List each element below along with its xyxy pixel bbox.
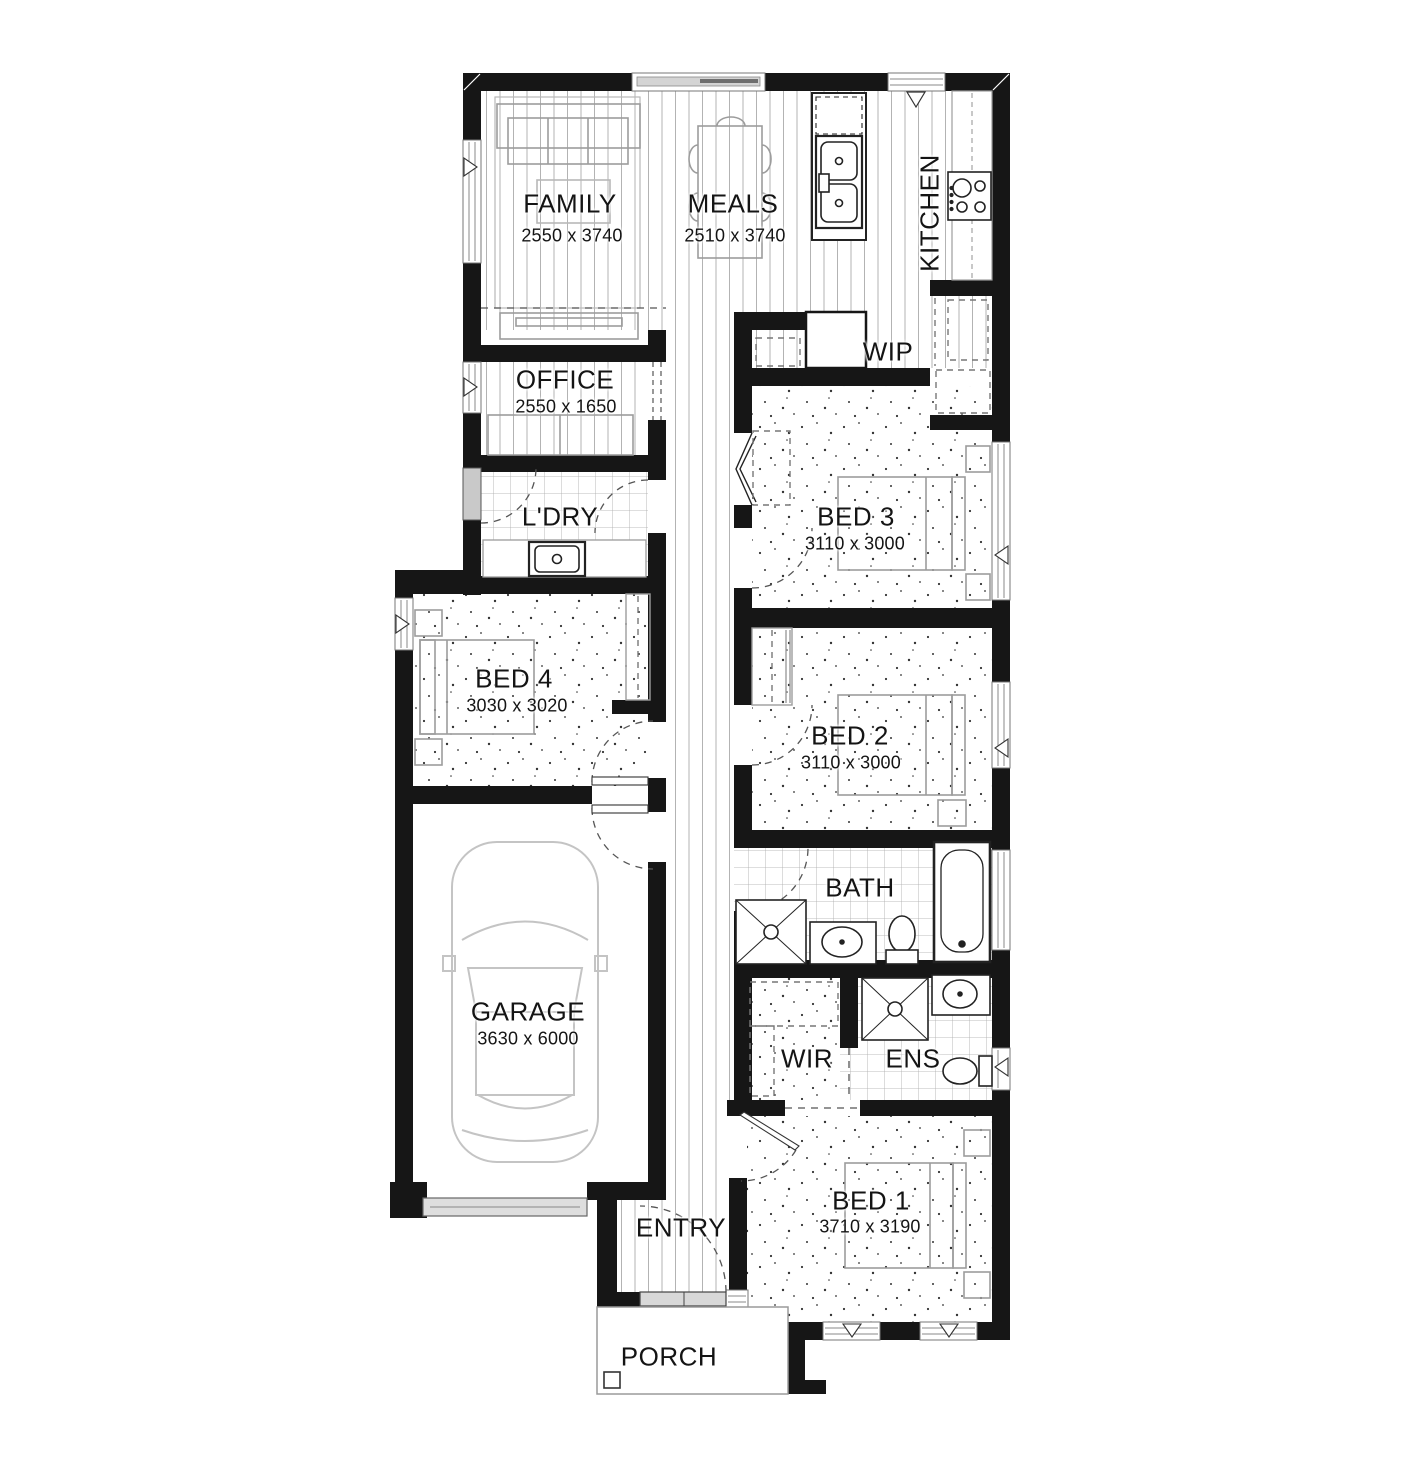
window-bed1-a [823, 1322, 880, 1340]
window-ens [992, 1048, 1010, 1090]
room-label-kitchen: KITCHEN [915, 154, 946, 272]
room-dim-bed2: 3110 x 3000 [801, 753, 901, 774]
front-door [640, 1292, 726, 1306]
hallway-floor [666, 330, 734, 1116]
room-dim-bed3: 3110 x 3000 [805, 534, 905, 555]
room-label-wip: WIP [863, 337, 914, 368]
room-label-ens: ENS [886, 1044, 941, 1075]
entry-sidelight [726, 1290, 748, 1308]
room-label-porch: PORCH [621, 1342, 717, 1373]
room-dim-bed4: 3030 x 3020 [466, 696, 567, 717]
room-label-bed2: BED 2 [811, 721, 889, 752]
kitchen-bench [948, 91, 992, 280]
laundry-trough-icon [529, 542, 585, 576]
entry-floor [666, 1116, 729, 1292]
room-label-office: OFFICE [516, 365, 614, 396]
bed4-door-leaf [592, 777, 648, 785]
bath-vanity-icon [810, 922, 876, 964]
room-label-laundry: L'DRY [522, 502, 598, 533]
bath-toilet-icon [886, 916, 918, 964]
room-dim-meals: 2510 x 3740 [684, 226, 785, 247]
garage-door-swing [592, 808, 653, 869]
window-bed4 [395, 598, 413, 650]
window-meals [632, 73, 765, 91]
room-label-family: FAMILY [523, 189, 617, 220]
window-bath [992, 850, 1010, 950]
room-label-meals: MEALS [688, 189, 779, 220]
room-label-bath: BATH [825, 873, 894, 904]
room-label-wir: WIR [781, 1044, 833, 1075]
laundry-bench [483, 540, 646, 577]
room-label-bed3: BED 3 [817, 502, 895, 533]
kitchen-cupboard [806, 312, 866, 368]
room-label-bed4: BED 4 [475, 664, 553, 695]
floor-plan-drawing [0, 0, 1407, 1465]
room-label-bed1: BED 1 [832, 1186, 910, 1217]
wir-floor [747, 978, 840, 1100]
garage-internal-door-leaf [592, 805, 648, 813]
window-office [463, 362, 481, 413]
room-dim-garage: 3630 x 6000 [477, 1029, 578, 1050]
laundry-external-door [463, 468, 481, 520]
room-dim-bed1: 3710 x 3190 [819, 1217, 920, 1238]
office-slider-door [653, 362, 661, 420]
ens-toilet-icon [943, 1056, 992, 1086]
floor-plan: FAMILY 2550 x 3740 MEALS 2510 x 3740 KIT… [0, 0, 1407, 1465]
room-dim-office: 2550 x 1650 [515, 397, 616, 418]
bath-shower-icon [736, 900, 806, 964]
kitchen-island-icon [812, 93, 866, 240]
window-family [463, 140, 481, 263]
room-label-entry: ENTRY [636, 1213, 726, 1244]
window-bed1-b [920, 1322, 977, 1340]
window-bed2 [992, 682, 1010, 768]
ens-shower-icon [862, 978, 928, 1040]
cooktop-icon [948, 172, 991, 220]
porch-post [604, 1372, 620, 1388]
garage-panel-door [423, 1198, 587, 1216]
bathtub-icon [934, 842, 990, 962]
room-dim-family: 2550 x 3740 [521, 226, 622, 247]
ens-vanity-icon [932, 975, 990, 1015]
room-label-garage: GARAGE [471, 997, 585, 1028]
window-bed3 [992, 442, 1010, 600]
